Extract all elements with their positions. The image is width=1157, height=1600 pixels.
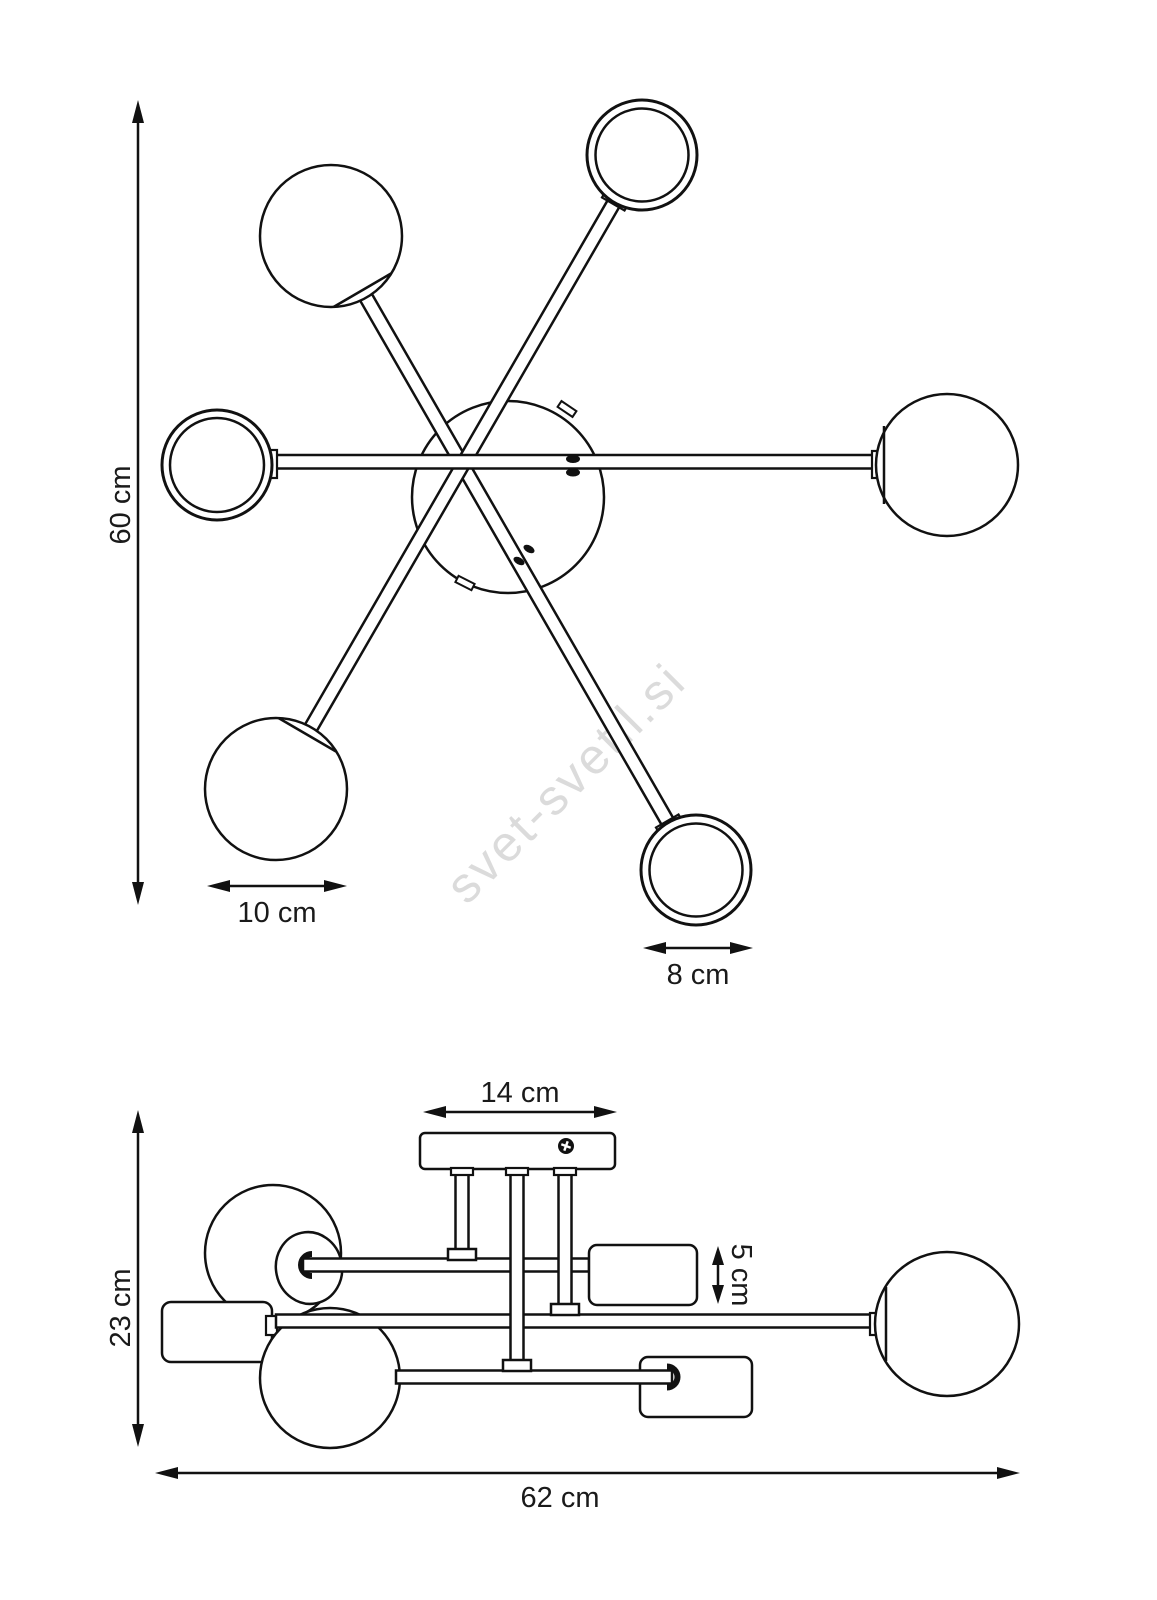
label-8cm: 8 cm [667,959,730,991]
side-shade-left [162,1302,272,1362]
side-arm-rear [303,1259,589,1272]
lamp-dimension-drawing: svet-svetil.si [0,0,1157,1600]
dimension-10cm: 10 cm [207,880,347,929]
globe-bottom-center-ringed [641,815,751,925]
globe-right [876,394,1018,536]
label-62cm: 62 cm [521,1482,600,1514]
dimension-23cm: 23 cm [105,1110,144,1447]
side-globe-front-left [260,1308,400,1448]
side-shade-rear-right [589,1245,697,1305]
dimension-14cm: 14 cm [423,1077,617,1118]
side-stem-caps [451,1168,576,1175]
globe-top-right-ringed [587,100,697,210]
label-23cm: 23 cm [105,1269,137,1348]
dimension-5cm: 5 cm [712,1244,757,1307]
globe-top-left [260,165,402,307]
label-14cm: 14 cm [481,1077,560,1109]
canopy-screw [558,1138,574,1154]
globe-bottom-left [205,718,347,860]
side-globe-back-left [205,1185,349,1321]
side-shade-bottom-right [640,1357,752,1417]
label-60cm: 60 cm [105,466,137,545]
side-arm-bottom [396,1371,672,1384]
globe-left-ringed [162,410,272,520]
label-5cm: 5 cm [725,1244,757,1307]
dimension-62cm: 62 cm [155,1467,1020,1514]
side-canopy [420,1133,615,1169]
side-view [162,1133,1019,1448]
top-view [162,100,1018,925]
label-10cm: 10 cm [238,897,317,929]
technical-drawing-page: svet-svetil.si [0,0,1157,1600]
hub-clip-top [558,401,577,417]
dimension-60cm: 60 cm [105,100,144,905]
side-arm-middle [276,1315,872,1328]
side-globe-right [870,1252,1019,1396]
dimension-8cm: 8 cm [643,942,753,991]
